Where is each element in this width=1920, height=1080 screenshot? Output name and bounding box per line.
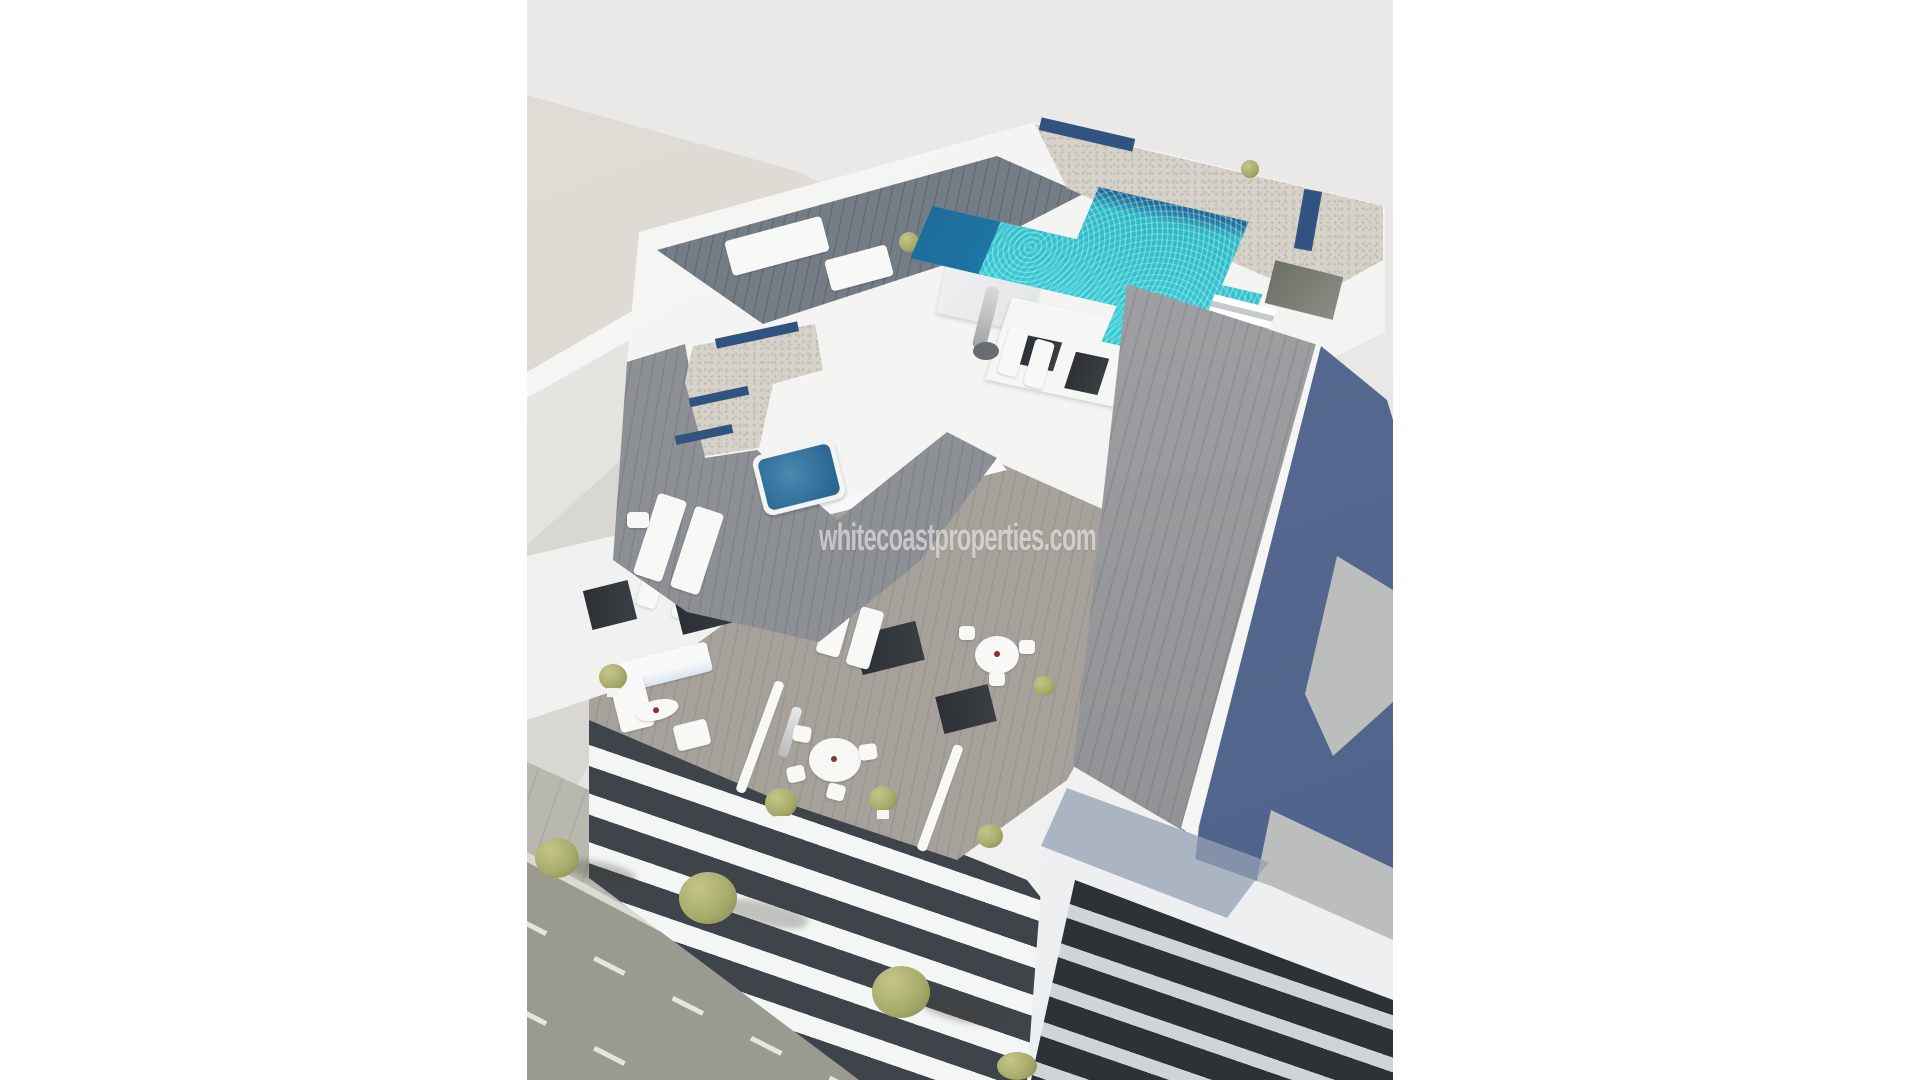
plant-pot — [607, 688, 619, 697]
property-render-photo: whitecoastproperties.com — [527, 0, 1393, 1080]
potted-plant — [1241, 160, 1259, 178]
potted-plant — [1033, 676, 1055, 696]
chair — [858, 743, 878, 761]
chair — [959, 626, 975, 640]
street-tree — [872, 966, 930, 1018]
chair — [792, 725, 813, 744]
street-tree — [535, 838, 579, 878]
street-tree — [679, 872, 737, 924]
plant-pot — [877, 810, 889, 819]
potted-plant — [977, 824, 1003, 848]
street-tree — [997, 1052, 1037, 1080]
potted-plant — [599, 664, 627, 690]
hot-tub-water — [757, 443, 841, 511]
potted-plant — [869, 786, 897, 812]
side-table — [627, 512, 649, 528]
chair — [989, 672, 1005, 686]
chair — [1019, 640, 1035, 654]
watermark-text: whitecoastproperties.com — [819, 517, 1096, 560]
plant-pot — [775, 816, 788, 826]
potted-plant — [765, 788, 797, 818]
screenshot-canvas: whitecoastproperties.com — [0, 0, 1920, 1080]
round-dining-table — [975, 636, 1019, 674]
round-dining-table — [809, 738, 861, 782]
